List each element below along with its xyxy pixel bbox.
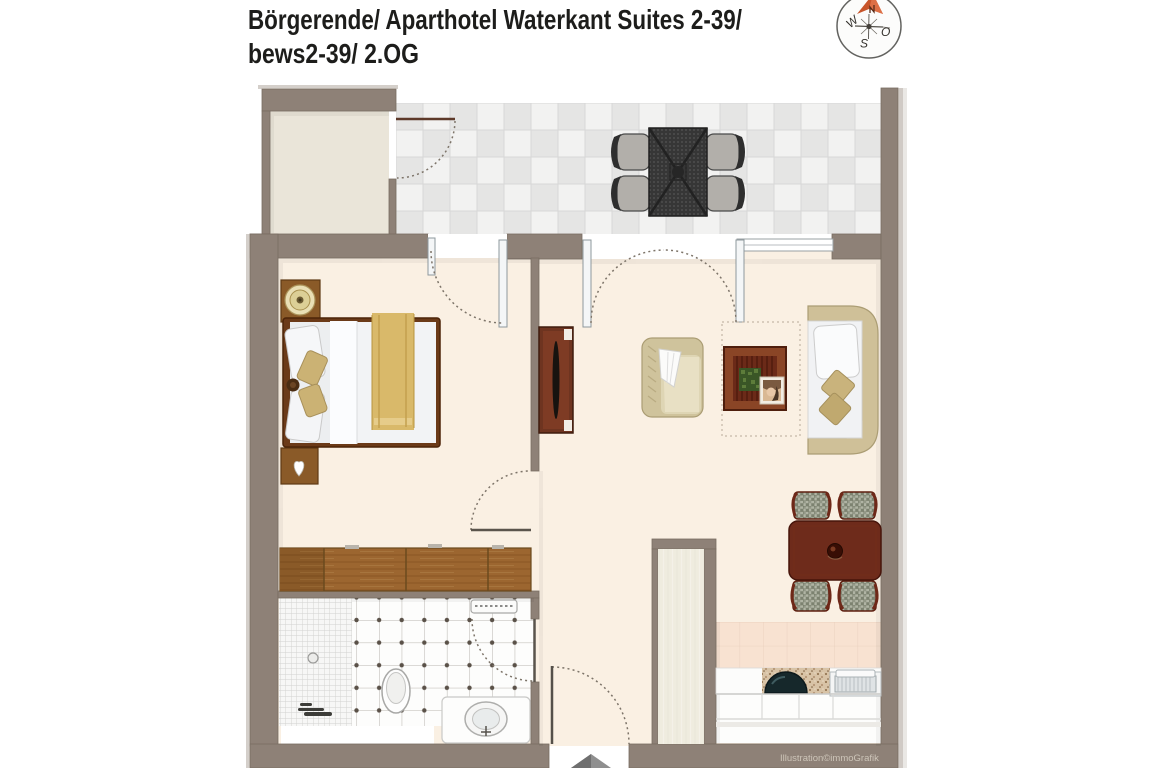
svg-text:bews2-39/ 2.OG: bews2-39/ 2.OG [248, 38, 419, 69]
svg-text:Illustration©immoGrafik: Illustration©immoGrafik [780, 753, 879, 764]
svg-text:Börgerende/ Aparthotel Waterka: Börgerende/ Aparthotel Waterkant Suites … [248, 4, 742, 35]
svg-text:O: O [881, 25, 890, 39]
svg-text:S: S [860, 37, 868, 51]
